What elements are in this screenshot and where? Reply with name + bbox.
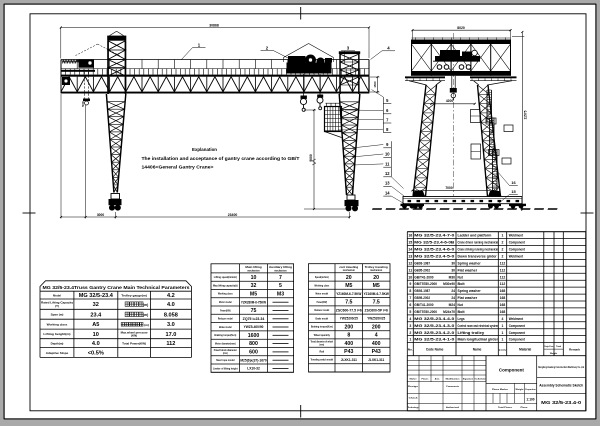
svg-text:Places: Places [422, 379, 430, 381]
svg-text:YWZ5200/25: YWZ5200/25 [340, 317, 358, 321]
svg-text:Traveling switch model: Traveling switch model [311, 358, 334, 362]
svg-text:Working class: Working class [218, 292, 233, 296]
svg-text:5: 5 [279, 283, 282, 289]
svg-text:Component: Component [509, 241, 526, 245]
svg-text:Steel rope model: Steel rope model [216, 358, 235, 362]
svg-text:Signature: Signature [463, 378, 474, 381]
svg-text:YZ160M-6-7.5KW: YZ160M-6-7.5KW [336, 292, 362, 296]
svg-text:13: 13 [385, 181, 390, 186]
svg-text:YZR280M-6-75KW: YZR280M-6-75KW [241, 300, 267, 304]
svg-text:4: 4 [409, 317, 411, 321]
svg-text:YWZ5-400/90: YWZ5-400/90 [244, 325, 264, 329]
svg-text:30: 30 [451, 261, 455, 265]
svg-text:mechanism: mechanism [370, 268, 383, 272]
svg-text:GB95-2002: GB95-2002 [414, 296, 430, 300]
svg-text:32: 32 [251, 283, 257, 289]
svg-text:MG 32/5-23.4Truss Gantry Crane: MG 32/5-23.4Truss Gantry Crane Main Tech… [43, 285, 191, 290]
svg-text:Depth(m): Depth(m) [51, 341, 64, 345]
svg-text:Technology: Technology [408, 407, 420, 409]
svg-text:Lifting height(m): Lifting height(m) [43, 332, 70, 336]
svg-text:Nut: Nut [458, 303, 464, 307]
svg-text:7: 7 [279, 275, 282, 281]
svg-text:Nut: Nut [458, 275, 464, 279]
svg-text:1600: 1600 [248, 333, 260, 339]
svg-text:Braking torque(N.m): Braking torque(N.m) [311, 325, 333, 329]
svg-text:Phase Marker: Phase Marker [492, 389, 508, 391]
svg-text:4.0: 4.0 [167, 302, 175, 308]
svg-text:Component: Component [509, 324, 526, 328]
svg-text:1: 1 [502, 338, 504, 342]
svg-text:3: 3 [409, 324, 411, 328]
svg-text:M5: M5 [373, 283, 380, 289]
svg-text:MG 32/5-23.4-4-0: MG 32/5-23.4-4-0 [414, 317, 454, 321]
svg-text:Lifting speed(m/min): Lifting speed(m/min) [214, 275, 237, 279]
svg-text:1500: 1500 [373, 81, 377, 88]
svg-text:Power(KW): Power(KW) [317, 300, 327, 304]
svg-text:2: 2 [502, 248, 504, 252]
svg-text:A5: A5 [92, 322, 99, 328]
svg-text:The installation and acceptanc: The installation and acceptance of gantr… [142, 156, 300, 161]
svg-text:Design: Design [408, 386, 419, 388]
svg-text:Braking torque(N.m): Braking torque(N.m) [214, 333, 236, 337]
svg-text:No.: No. [408, 347, 413, 351]
svg-text:10: 10 [408, 275, 412, 279]
svg-text:400: 400 [344, 341, 353, 347]
svg-text:GB93-1987: GB93-1987 [414, 289, 430, 293]
svg-text:(T): (T) [55, 304, 59, 308]
svg-text:Main longitudinal girder: Main longitudinal girder [458, 338, 499, 342]
svg-text:(m): (m) [143, 313, 148, 317]
svg-text:Limiter of lifting height: Limiter of lifting height [213, 366, 238, 370]
svg-text:8.058: 8.058 [164, 312, 178, 318]
svg-text:GB/T5780-2000: GB/T5780-2000 [414, 310, 437, 314]
svg-text:M5: M5 [250, 292, 257, 298]
svg-text:M24: M24 [449, 303, 456, 307]
svg-text:Lifting trolley: Lifting trolley [458, 331, 485, 335]
svg-text:GB/T41-2000: GB/T41-2000 [414, 303, 433, 307]
svg-text:(m): (m) [143, 303, 148, 307]
svg-text:11: 11 [408, 268, 412, 272]
svg-text:Total Pieces: Total Pieces [498, 406, 513, 409]
svg-text:112: 112 [166, 341, 175, 347]
svg-text:2: 2 [409, 331, 411, 335]
svg-text:Single-Piece: Single-Piece [544, 346, 554, 348]
svg-text:GB/T5780-2000: GB/T5780-2000 [414, 282, 437, 286]
svg-text:Authorized: Authorized [446, 406, 460, 409]
svg-text:12: 12 [385, 171, 390, 176]
svg-text:M25(6)x(37)-1670: M25(6)x(37)-1670 [240, 358, 266, 362]
svg-text:Check: Check [409, 398, 419, 400]
svg-text:(KN): (KN) [131, 334, 137, 338]
svg-text:Down transverse girder: Down transverse girder [458, 255, 498, 259]
svg-text:15: 15 [408, 241, 412, 245]
svg-text:Weldment: Weldment [509, 255, 524, 259]
svg-text:Spring washer: Spring washer [458, 261, 482, 265]
svg-text:JLXK1-311: JLXK1-311 [341, 358, 357, 362]
svg-text:YWZ5200/25: YWZ5200/25 [367, 317, 385, 321]
svg-text:MG 32/5-23.4-6-0: MG 32/5-23.4-6-0 [414, 248, 454, 252]
svg-text:Spring washer: Spring washer [458, 289, 482, 293]
svg-text:1: 1 [409, 338, 411, 342]
svg-text:168: 168 [500, 303, 506, 307]
svg-text:2: 2 [502, 241, 504, 245]
svg-text:Span (m): Span (m) [51, 313, 64, 317]
svg-text:1: 1 [502, 324, 504, 328]
svg-text:7.5: 7.5 [373, 300, 380, 306]
svg-text:200: 200 [372, 324, 381, 330]
svg-text:Rail: Rail [320, 349, 325, 353]
svg-text:MG 32/5-23.4-5-0: MG 32/5-23.4-5-0 [414, 255, 454, 259]
svg-text:800: 800 [249, 341, 258, 347]
svg-text:112: 112 [500, 261, 506, 265]
svg-text:14: 14 [385, 190, 390, 195]
svg-text:168: 168 [500, 296, 506, 300]
svg-text:Code Name: Code Name [426, 347, 444, 351]
svg-text:7.5: 7.5 [345, 300, 352, 306]
svg-text:12: 12 [408, 261, 412, 265]
svg-text:Motor model: Motor model [219, 300, 232, 304]
svg-text:4: 4 [375, 333, 378, 339]
svg-text:30868: 30868 [209, 24, 219, 28]
svg-text:Max.lifting capacity(t): Max.lifting capacity(t) [213, 283, 238, 287]
svg-text:Power(KW): Power(KW) [220, 308, 230, 312]
svg-text:MG 32/5-23.4-1-0: MG 32/5-23.4-1-0 [414, 338, 454, 342]
svg-text:Motor model: Motor model [315, 292, 328, 296]
svg-text:20: 20 [346, 275, 352, 281]
svg-text:Dengfeng Hualong Construction: Dengfeng Hualong Construction Machinery … [538, 366, 584, 369]
svg-text:Proportion: Proportion [525, 388, 536, 391]
svg-text:ZSC600-5P i=6: ZSC600-5P i=6 [365, 308, 389, 312]
svg-text:LX10-32: LX10-32 [247, 367, 260, 371]
svg-text:400: 400 [372, 341, 381, 347]
svg-text:17.0: 17.0 [165, 332, 176, 338]
svg-text:75: 75 [251, 308, 257, 314]
svg-text:24: 24 [451, 296, 455, 300]
svg-text:Remark: Remark [569, 347, 580, 351]
svg-text:11: 11 [385, 162, 390, 167]
svg-text:M5: M5 [345, 283, 352, 289]
svg-text:10: 10 [93, 332, 99, 338]
svg-text:Ladder and platform: Ladder and platform [458, 234, 492, 238]
svg-text:ZQ75 i=23.34: ZQ75 i=23.34 [243, 317, 265, 321]
svg-text:Flat washer: Flat washer [458, 268, 478, 272]
svg-text:Weldment: Weldment [509, 234, 524, 238]
svg-text:GB93-1987: GB93-1987 [414, 261, 430, 265]
svg-text:24: 24 [451, 289, 455, 293]
svg-text:Piece: Piece [521, 407, 529, 409]
svg-text:Marker: Marker [410, 378, 417, 381]
svg-text:Weight: Weight [550, 352, 558, 355]
svg-text:Brake model: Brake model [219, 325, 232, 329]
svg-text:M30: M30 [449, 275, 456, 279]
svg-text:1: 1 [502, 234, 504, 238]
svg-text:Name: Name [473, 347, 482, 351]
svg-text:7000: 7000 [445, 186, 453, 190]
svg-text:Component: Component [509, 331, 526, 335]
svg-text:23.4: 23.4 [90, 312, 102, 318]
svg-text:5: 5 [409, 310, 411, 314]
svg-text:112: 112 [500, 282, 506, 286]
svg-text:Reducer model: Reducer model [314, 308, 329, 312]
svg-text:Total Power(KW): Total Power(KW) [122, 341, 146, 345]
svg-text:112: 112 [500, 268, 506, 272]
svg-text:Component: Component [499, 368, 524, 373]
svg-text:3.0: 3.0 [167, 322, 175, 328]
svg-text:Legs: Legs [458, 317, 465, 321]
svg-text:11575: 11575 [524, 110, 528, 119]
svg-text:MG 32/5-23.4-3-0: MG 32/5-23.4-3-0 [414, 324, 454, 328]
svg-text:Quantity: Quantity [499, 348, 507, 351]
svg-text:Brake model: Brake model [315, 316, 328, 320]
svg-text:P43: P43 [344, 349, 353, 355]
svg-text:Wheel quantity: Wheel quantity [314, 333, 331, 337]
svg-text:16: 16 [408, 234, 412, 238]
svg-text:4200: 4200 [446, 99, 454, 103]
svg-text:M30x90: M30x90 [443, 282, 455, 286]
svg-text:Flat washer: Flat washer [458, 296, 478, 300]
svg-text:ZSC600-77.5 i=6: ZSC600-77.5 i=6 [336, 308, 362, 312]
svg-text:Material: Material [519, 347, 531, 351]
svg-text:(mm): (mm) [320, 343, 325, 347]
svg-text:8: 8 [409, 289, 411, 293]
svg-text:Control room and electrical sy: Control room and electrical system [458, 324, 499, 328]
svg-text:32: 32 [93, 302, 99, 308]
svg-text:MG 32/5-23.4: MG 32/5-23.4 [79, 293, 114, 299]
svg-text:MG 32/5-23.4-0: MG 32/5-23.4-0 [541, 400, 581, 406]
svg-text:Explanation: Explanation [192, 147, 217, 152]
svg-text:Assembly Schematic Sketch: Assembly Schematic Sketch [539, 384, 583, 388]
svg-text:(m): (m) [144, 323, 149, 327]
svg-text:Trolley gauge(m): Trolley gauge(m) [121, 293, 147, 297]
svg-text:30: 30 [451, 268, 455, 272]
svg-text:4.2: 4.2 [167, 293, 175, 299]
svg-text:4: 4 [502, 317, 504, 321]
svg-text:mechanism: mechanism [274, 268, 287, 272]
svg-text:MG 32/5-23.4-6-0B: MG 32/5-23.4-6-0B [414, 241, 455, 245]
svg-text:8020: 8020 [457, 26, 465, 30]
svg-text:1: 1 [502, 331, 504, 335]
svg-text:7: 7 [409, 296, 411, 300]
svg-text:14: 14 [408, 248, 412, 252]
svg-text:Weight: Weight [516, 388, 524, 391]
svg-text:10: 10 [251, 275, 257, 281]
svg-text:Working class: Working class [314, 283, 329, 287]
svg-text:Bolt: Bolt [458, 282, 466, 286]
svg-text:8: 8 [347, 333, 350, 339]
svg-text:MG 32/5-23.4-7-0: MG 32/5-23.4-7-0 [414, 234, 454, 238]
svg-text:M24x70: M24x70 [443, 310, 455, 314]
svg-text:112: 112 [500, 275, 506, 279]
svg-text:600: 600 [249, 350, 258, 356]
svg-text:Component: Component [509, 338, 526, 342]
svg-text:JLXK1-311: JLXK1-311 [368, 358, 384, 362]
svg-text:4.0: 4.0 [92, 341, 100, 347]
svg-text:mechanism: mechanism [247, 268, 260, 272]
svg-text:Reducer model: Reducer model [218, 317, 233, 321]
svg-text:Speed(m/min): Speed(m/min) [315, 275, 329, 279]
svg-text:13: 13 [408, 255, 412, 259]
svg-text:Component: Component [509, 248, 526, 252]
svg-text:200: 200 [344, 324, 353, 330]
svg-text:<0.5%: <0.5% [88, 351, 104, 357]
svg-text:20: 20 [373, 275, 379, 281]
svg-text:23400: 23400 [228, 213, 238, 217]
svg-text:YZ160M-6-7.5KW: YZ160M-6-7.5KW [364, 292, 390, 296]
svg-text:9: 9 [409, 282, 411, 286]
svg-text:10: 10 [385, 152, 390, 157]
svg-text:mechanism: mechanism [343, 268, 356, 272]
svg-text:6: 6 [409, 303, 411, 307]
svg-text:Weldment: Weldment [509, 317, 524, 321]
svg-text:Year-Month-Date: Year-Month-Date [475, 378, 487, 381]
svg-text:P43: P43 [372, 349, 381, 355]
svg-text:(mm): (mm) [223, 351, 228, 355]
svg-text:Motor diameter(mm): Motor diameter(mm) [215, 341, 236, 345]
svg-text:3000: 3000 [97, 213, 105, 217]
svg-text:Crane driven running mechanica: Crane driven running mechanical [458, 241, 499, 245]
svg-text:Comments: Comments [446, 385, 460, 388]
svg-text:168: 168 [500, 289, 506, 293]
svg-text:1:100: 1:100 [526, 398, 534, 402]
svg-text:GB/T41-2000: GB/T41-2000 [414, 275, 433, 279]
svg-text:GB95-2002: GB95-2002 [414, 268, 430, 272]
svg-text:2: 2 [502, 255, 504, 259]
svg-text:Working class: Working class [47, 322, 68, 326]
svg-text:Bolt: Bolt [458, 310, 466, 314]
svg-text:Modification: Modification [446, 378, 461, 381]
svg-text:Total: Total [556, 345, 561, 348]
svg-text:14406<General Gantry Crane>: 14406<General Gantry Crane> [142, 165, 214, 170]
svg-text:168: 168 [500, 310, 506, 314]
svg-text:MG 32/5-23.4-2-0: MG 32/5-23.4-2-0 [414, 331, 454, 335]
svg-text:5000: 5000 [81, 101, 85, 107]
svg-text:Crane driving running mechanic: Crane driving running mechanical [458, 248, 499, 252]
svg-text:Model: Model [53, 293, 61, 297]
svg-text:M3: M3 [277, 292, 284, 298]
svg-text:Adaptive Slope: Adaptive Slope [46, 351, 69, 355]
